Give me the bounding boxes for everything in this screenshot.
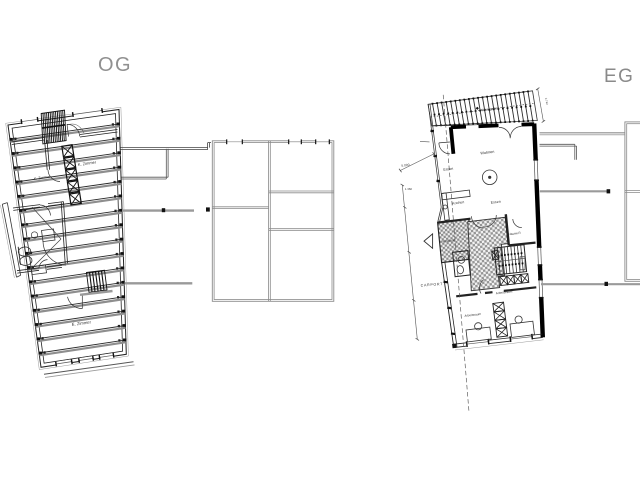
svg-text:EG: EG	[604, 66, 634, 87]
svg-text:1.382: 1.382	[405, 187, 413, 191]
svg-text:OG: OG	[98, 54, 132, 76]
